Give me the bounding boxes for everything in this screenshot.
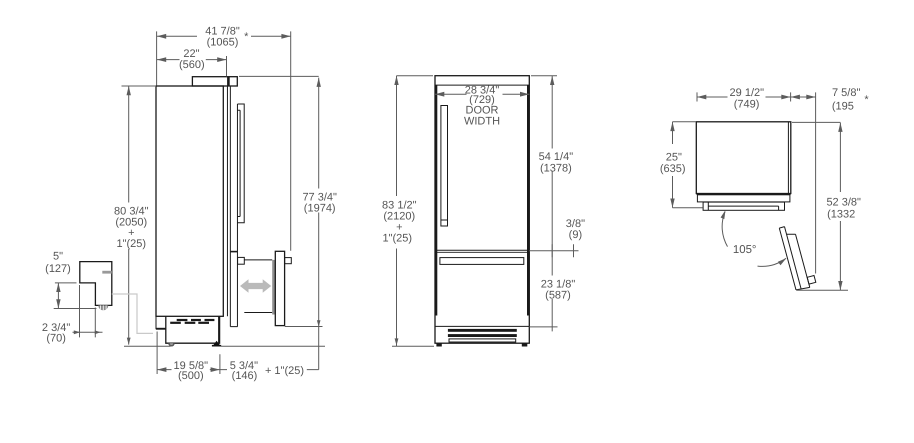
svg-text:(587): (587) [545, 290, 571, 302]
svg-text:(1378): (1378) [540, 162, 572, 174]
svg-text:7 5/8": 7 5/8" [832, 87, 860, 99]
svg-text:29 1/2": 29 1/2" [730, 87, 765, 99]
svg-text:(146): (146) [232, 370, 258, 382]
svg-text:1"(25): 1"(25) [117, 238, 147, 250]
svg-text:(1065): (1065) [207, 36, 239, 48]
svg-text:(749): (749) [734, 99, 760, 111]
svg-text:WIDTH: WIDTH [464, 116, 500, 128]
svg-text:54 1/4": 54 1/4" [539, 151, 574, 163]
svg-text:(1332: (1332 [827, 209, 855, 221]
svg-text:(127): (127) [45, 263, 71, 275]
svg-text:25": 25" [666, 151, 682, 163]
svg-text:(1974): (1974) [304, 202, 336, 214]
svg-text:(70): (70) [46, 333, 66, 345]
svg-text:105°: 105° [733, 244, 757, 256]
svg-text:(500): (500) [178, 370, 204, 382]
svg-text:(560): (560) [179, 59, 205, 71]
svg-text:1"(25): 1"(25) [383, 233, 413, 245]
svg-text:*: * [864, 94, 869, 106]
svg-text:5": 5" [53, 250, 63, 262]
svg-text:+ 1"(25): + 1"(25) [265, 365, 304, 377]
svg-text:52 3/8": 52 3/8" [826, 196, 861, 208]
svg-text:(195: (195 [832, 100, 854, 112]
svg-text:*: * [244, 31, 249, 43]
svg-text:(635): (635) [660, 163, 686, 175]
svg-text:(9): (9) [569, 229, 582, 241]
